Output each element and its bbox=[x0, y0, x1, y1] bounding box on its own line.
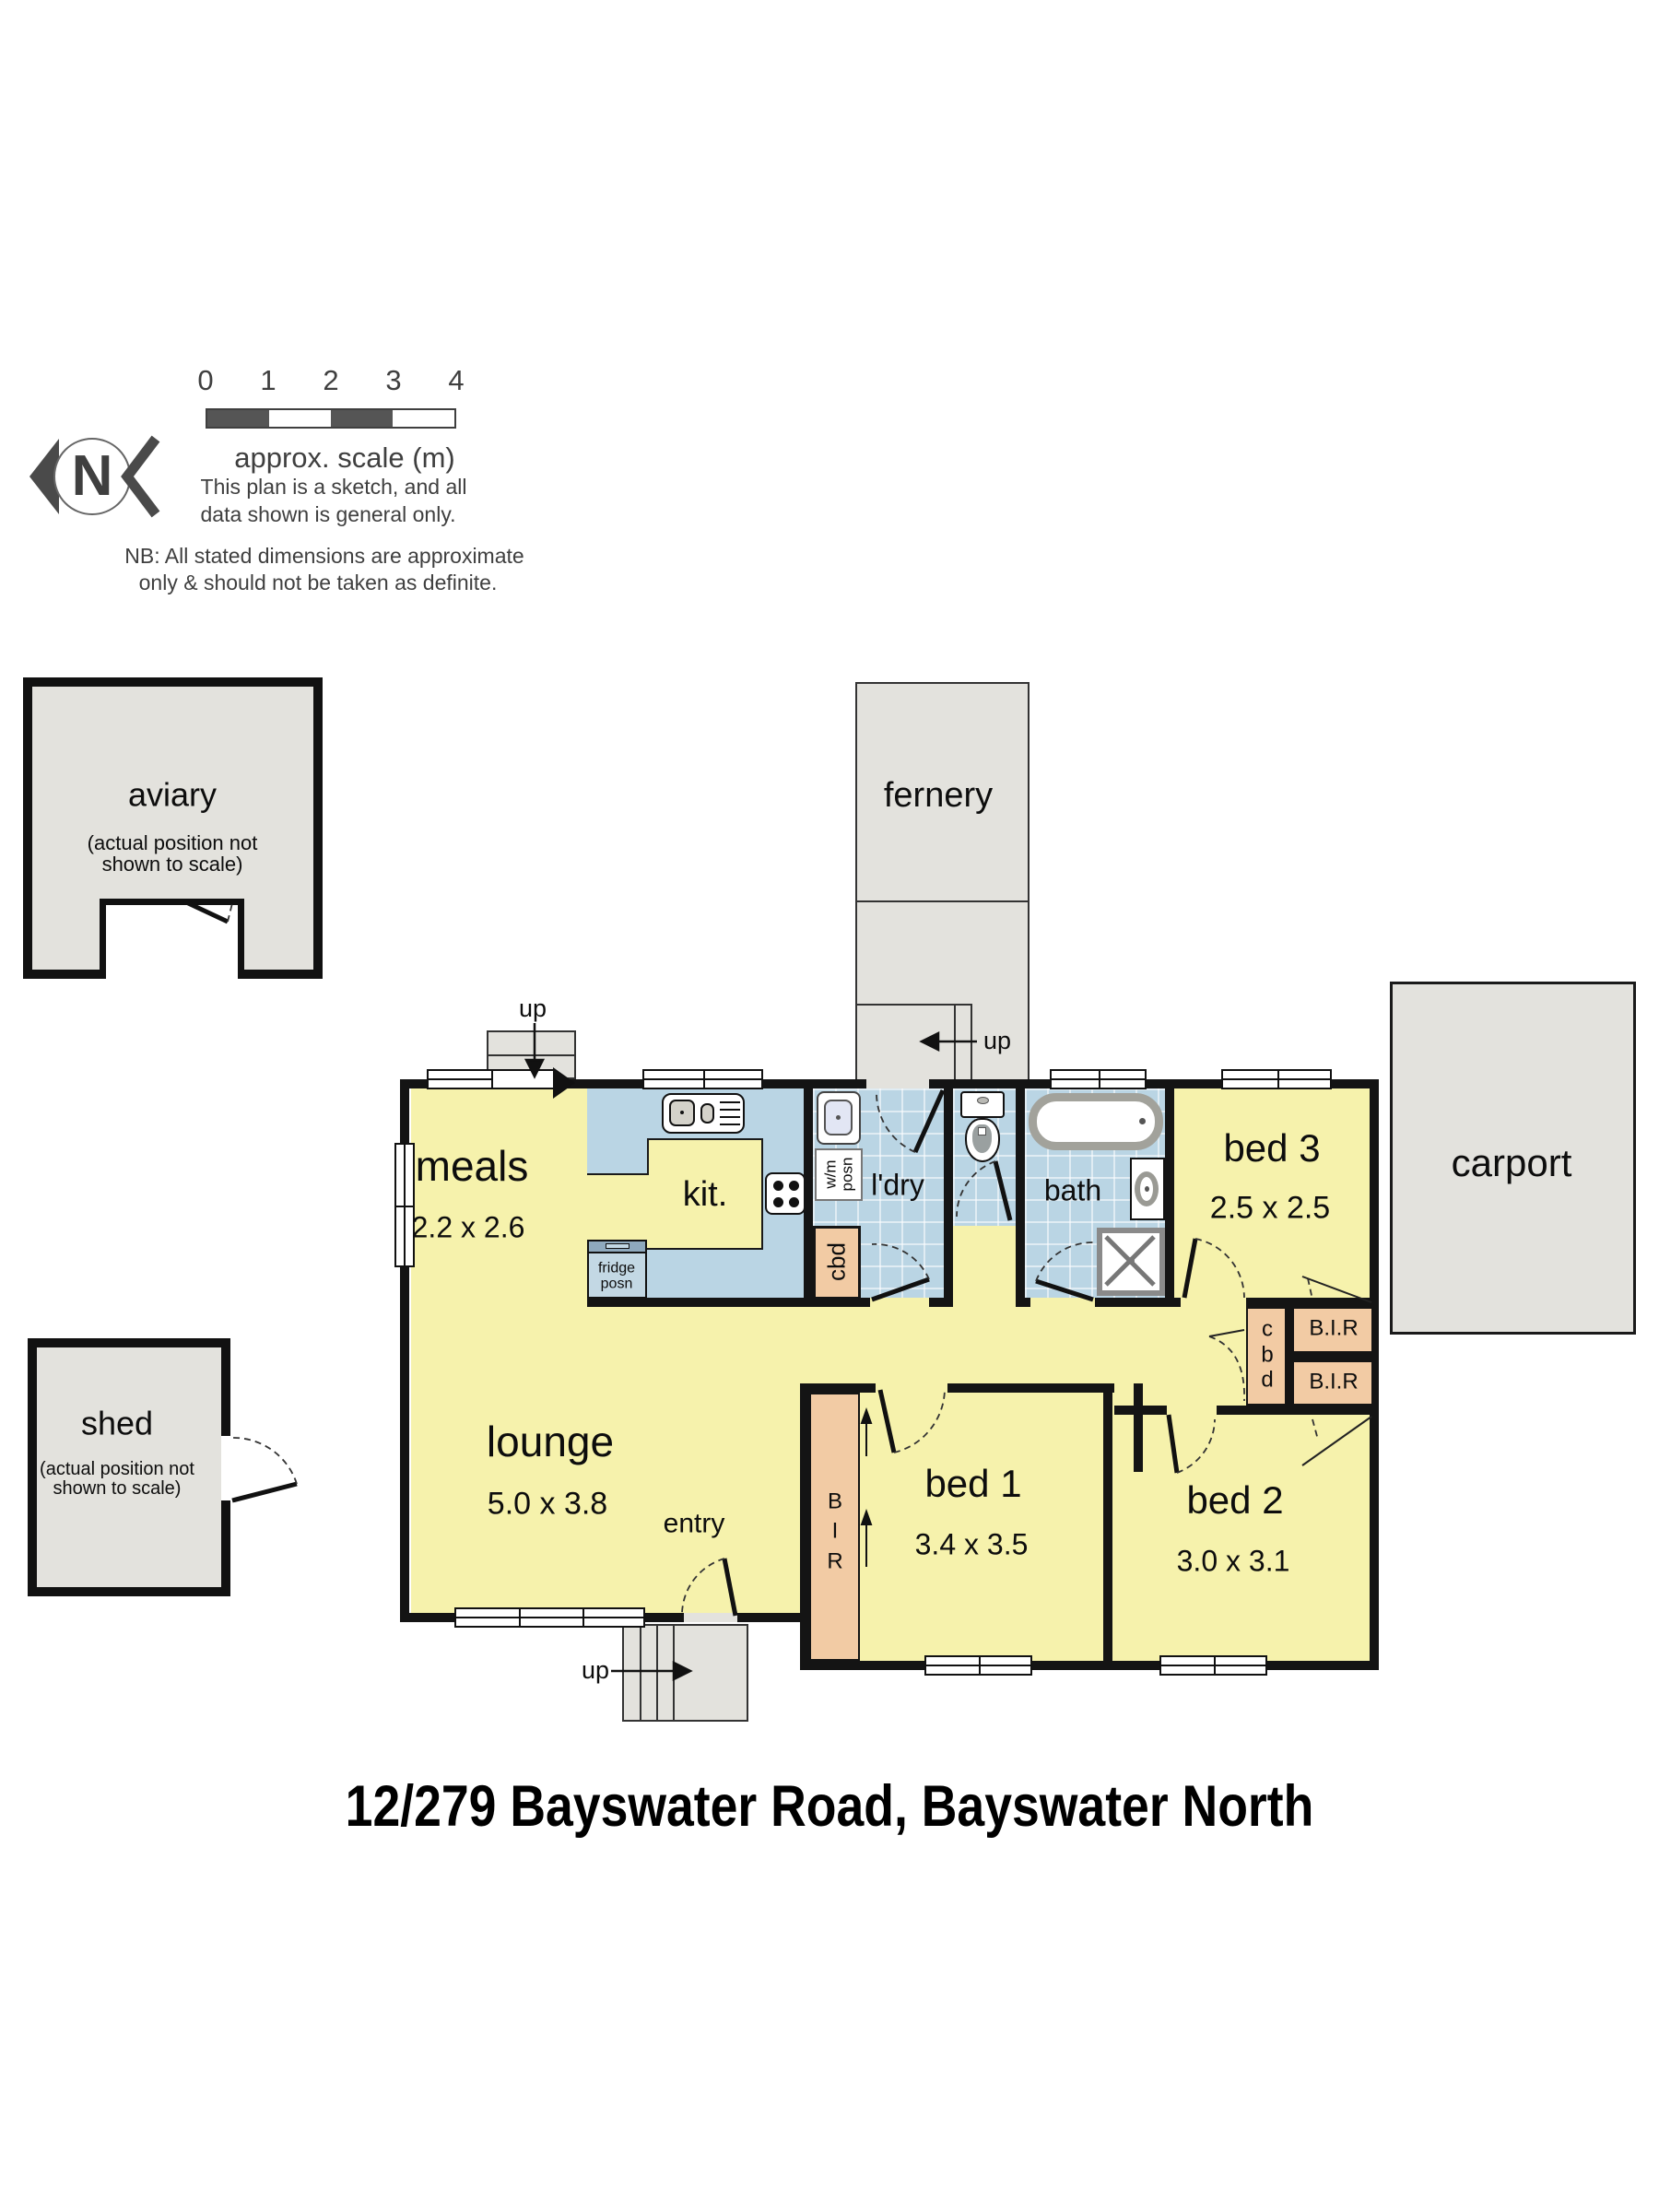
shed-label: shed bbox=[81, 1406, 153, 1440]
laundry-cupboard-label: cbd bbox=[824, 1242, 849, 1281]
room-label-meals: meals bbox=[416, 1145, 529, 1189]
deck-up-label: up bbox=[519, 995, 547, 1021]
window bbox=[1221, 1069, 1332, 1089]
sink-bowl bbox=[700, 1103, 714, 1124]
scale-tick: 2 bbox=[323, 366, 338, 395]
toilet-bowl bbox=[965, 1118, 1000, 1162]
porch-step-line bbox=[656, 1624, 658, 1722]
wall bbox=[1288, 1353, 1373, 1360]
room-label-entry: entry bbox=[664, 1509, 725, 1537]
scale-bar bbox=[206, 408, 456, 429]
door-opening bbox=[1030, 1298, 1095, 1307]
scale-tick: 4 bbox=[448, 366, 464, 395]
fernery-stair-line bbox=[971, 1004, 972, 1084]
room-dims-bed1: 3.4 x 3.5 bbox=[915, 1529, 1029, 1559]
sketch-note-line1: This plan is a sketch, and all bbox=[201, 477, 467, 499]
door-opening bbox=[953, 1298, 1016, 1307]
window bbox=[394, 1143, 415, 1267]
window bbox=[1159, 1655, 1267, 1676]
room-label-lounge: lounge bbox=[487, 1420, 614, 1465]
shower bbox=[1097, 1228, 1165, 1296]
nb-note-line2: only & should not be taken as definite. bbox=[139, 572, 498, 594]
room-dims-lounge: 5.0 x 3.8 bbox=[488, 1488, 607, 1520]
shed-door-opening bbox=[221, 1436, 230, 1500]
page-title: 12/279 Bayswater Road, Bayswater North bbox=[346, 1773, 1314, 1840]
wall bbox=[800, 1661, 1379, 1670]
carport-label: carport bbox=[1452, 1143, 1572, 1183]
kitchen-floor bbox=[587, 1173, 647, 1250]
nb-note-line1: NB: All stated dimensions are approximat… bbox=[124, 546, 524, 568]
window bbox=[454, 1607, 645, 1628]
room-label-bed3: bed 3 bbox=[1223, 1128, 1320, 1169]
north-letter: N bbox=[72, 447, 113, 506]
sketch-note-line2: data shown is general only. bbox=[200, 504, 455, 526]
fridge-label: fridge posn bbox=[598, 1261, 635, 1291]
scale-caption: approx. scale (m) bbox=[234, 443, 454, 473]
wall bbox=[1165, 1088, 1174, 1298]
room-dims-bed3: 2.5 x 2.5 bbox=[1210, 1192, 1330, 1224]
door-opening bbox=[870, 1298, 929, 1307]
vanity bbox=[1130, 1158, 1165, 1220]
fernery-stair-line bbox=[954, 1004, 956, 1084]
wall bbox=[1134, 1383, 1143, 1472]
room-label-bed1: bed 1 bbox=[924, 1464, 1021, 1504]
wall bbox=[944, 1088, 953, 1298]
robe-label: B.I.R bbox=[1309, 1318, 1358, 1341]
wall bbox=[800, 1383, 809, 1670]
aviary-note: (actual position not shown to scale) bbox=[88, 833, 258, 876]
fernery-structure bbox=[855, 682, 1030, 1084]
window bbox=[427, 1069, 493, 1089]
shed-note: (actual position not shown to scale) bbox=[40, 1460, 194, 1499]
door-opening bbox=[684, 1613, 737, 1622]
room-label-bed2: bed 2 bbox=[1186, 1480, 1283, 1521]
washing-machine-label: w/m posn bbox=[822, 1158, 854, 1192]
toilet-cistern bbox=[960, 1091, 1005, 1118]
entry-robe-label: B I R bbox=[827, 1487, 842, 1576]
door-opening bbox=[1181, 1298, 1246, 1307]
window bbox=[924, 1655, 1032, 1676]
porch-step-line bbox=[640, 1624, 641, 1722]
aviary-label: aviary bbox=[128, 777, 217, 811]
robe-label: B.I.R bbox=[1309, 1371, 1358, 1394]
door-opening-band bbox=[491, 1069, 556, 1089]
scale-bar-segment bbox=[331, 410, 393, 427]
door-opening bbox=[876, 1383, 947, 1393]
wall bbox=[1143, 1406, 1167, 1415]
room-label-kitchen: kit. bbox=[683, 1177, 728, 1214]
wall bbox=[1103, 1383, 1112, 1670]
bathtub bbox=[1029, 1093, 1163, 1150]
house-floor bbox=[800, 1567, 1370, 1670]
window bbox=[642, 1069, 763, 1089]
sink-dot bbox=[680, 1111, 684, 1114]
room-label-bath: bath bbox=[1044, 1175, 1101, 1206]
fernery-up-label: up bbox=[983, 1028, 1011, 1053]
stove-cooktop bbox=[765, 1172, 806, 1215]
sink-drainer bbox=[720, 1101, 740, 1125]
room-dims-meals: 2.2 x 2.6 bbox=[412, 1212, 525, 1242]
bench-edge bbox=[647, 1138, 649, 1175]
porch-up-label: up bbox=[582, 1657, 609, 1683]
wall bbox=[1016, 1088, 1025, 1298]
kitchen-sink bbox=[662, 1093, 745, 1134]
deck-step-line bbox=[487, 1054, 576, 1056]
aviary-door-notch bbox=[100, 899, 244, 979]
scale-tick: 0 bbox=[197, 366, 213, 395]
room-dims-bed2: 3.0 x 3.1 bbox=[1177, 1546, 1290, 1576]
room-label-laundry: l'dry bbox=[871, 1170, 924, 1200]
wall bbox=[800, 1383, 1114, 1393]
window bbox=[1050, 1069, 1147, 1089]
wall bbox=[804, 1088, 813, 1298]
door-opening bbox=[866, 1079, 929, 1088]
scale-tick: 3 bbox=[385, 366, 401, 395]
scale-tick: 1 bbox=[260, 366, 276, 395]
floorplan-canvas: N 0 1 2 3 4 approx. scale (m) This plan … bbox=[0, 0, 1659, 2212]
fernery-label: fernery bbox=[884, 778, 993, 815]
laundry-trough bbox=[817, 1091, 861, 1145]
fernery-divider bbox=[855, 900, 1030, 902]
porch-step-line bbox=[673, 1624, 675, 1722]
door-opening bbox=[1167, 1406, 1217, 1415]
scale-bar-segment bbox=[207, 410, 269, 427]
hall-cupboard-label: c b d bbox=[1261, 1317, 1273, 1394]
